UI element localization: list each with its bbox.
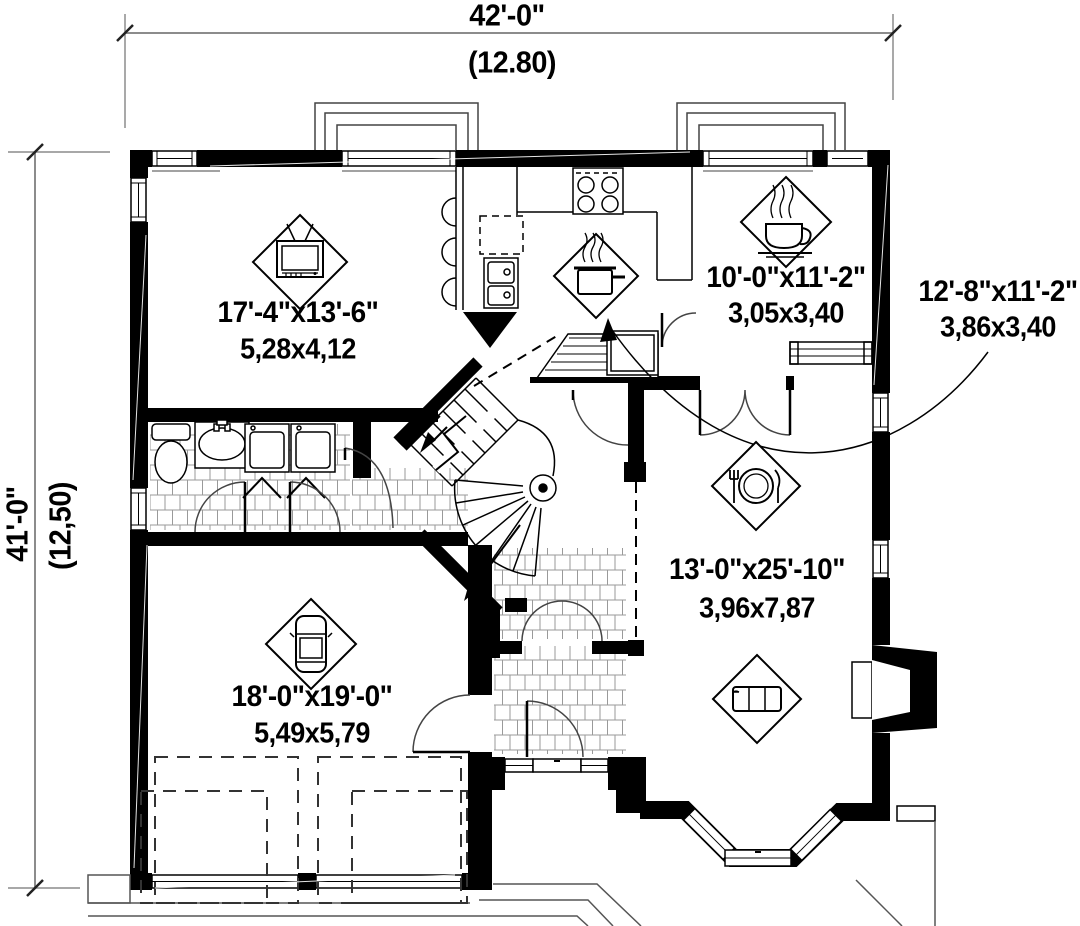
great-room-size-imperial: 13'-0"x25'-10" xyxy=(669,555,845,585)
garage-service-door xyxy=(413,695,470,752)
living-room-size-imperial: 17'-4"x13'-6" xyxy=(218,298,379,328)
bay-window-bottom xyxy=(640,809,890,866)
sofa-icon xyxy=(713,655,801,743)
bay-window-top-left xyxy=(315,103,478,150)
breakfast-nook-size-imperial: 10'-0"x11'-2" xyxy=(706,263,865,293)
cooking-pot-icon xyxy=(554,233,638,318)
garage-size-metric: 5,49x5,79 xyxy=(254,720,370,749)
window-top-right xyxy=(827,151,868,166)
kitchen-size-metric: 3,86x3,40 xyxy=(940,314,1056,343)
left-dimension-imperial: 41'-0" xyxy=(2,486,33,561)
kitchen-sink xyxy=(484,258,518,308)
tv-icon xyxy=(253,215,347,309)
garage-size-imperial: 18'-0"x19'-0" xyxy=(232,682,393,712)
dining-icon xyxy=(712,442,800,530)
breakfast-nook-size-metric: 3,05x3,40 xyxy=(728,300,844,329)
floor-plan-page: 42'-0" (12.80) 41'-0" (12,50) 17'-4"x13'… xyxy=(0,0,1080,926)
fireplace xyxy=(852,645,937,821)
great-room-size-metric: 3,96x7,87 xyxy=(699,595,815,624)
top-dimension-imperial: 42'-0" xyxy=(469,0,544,31)
front-door xyxy=(505,759,608,772)
car-icon xyxy=(266,599,356,689)
window-kitchen-bay xyxy=(342,151,456,166)
toilet xyxy=(152,424,190,483)
window-left-upper xyxy=(131,178,146,222)
floor-plan-drawing xyxy=(0,0,1080,926)
bathroom-sink xyxy=(195,420,249,468)
window-left-lower xyxy=(131,488,146,530)
dining-entry-door xyxy=(573,390,628,445)
fridge xyxy=(480,216,523,254)
nook-door xyxy=(662,313,696,347)
bay-window-top-right xyxy=(677,103,845,150)
window-right-upper xyxy=(873,393,888,432)
window-living-top xyxy=(152,151,197,166)
top-dimension-metric: (12.80) xyxy=(468,47,556,78)
stove xyxy=(573,168,623,214)
left-dimension-metric: (12,50) xyxy=(45,482,76,570)
coffee-cup-icon xyxy=(741,177,831,267)
interior-walls xyxy=(148,312,794,890)
window-nook-bay xyxy=(703,151,813,166)
window-seat xyxy=(790,342,872,364)
living-room-size-metric: 5,28x4,12 xyxy=(240,336,356,365)
french-doors xyxy=(700,390,790,435)
window-right-lower xyxy=(873,540,888,578)
kitchen-size-imperial: 12'-8"x11'-2" xyxy=(918,277,1077,307)
